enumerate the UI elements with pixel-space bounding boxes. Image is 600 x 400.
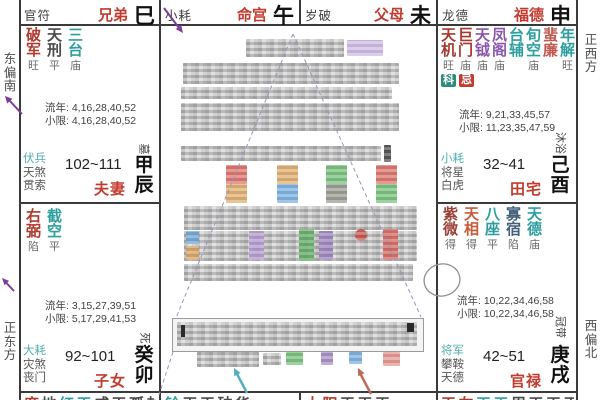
minor-god: 天煞	[23, 167, 46, 181]
ziwei-chart: 东偏南 正东方 正西方 西偏北 官符 兄弟 巳 小耗 命宫 午 岁破 父母 未 …	[0, 0, 600, 400]
xiaoxian-ages: 小限: 4,16,28,40,52	[45, 115, 136, 128]
year-god-label: 龙德	[442, 5, 469, 24]
star-name: 太阳	[305, 396, 340, 400]
pixelated-block	[263, 353, 281, 365]
compass-label-west-north: 西偏北	[584, 320, 598, 361]
year-god-label: 官符	[24, 5, 51, 24]
minor-god: 将星	[441, 167, 464, 181]
pixelated-block	[277, 184, 298, 203]
pixelated-block	[319, 231, 333, 260]
palace-mao: 右弼 陷 截空 平 流年: 3,15,27,39,51 小限: 5,17,29,…	[20, 203, 160, 392]
pixelated-block	[186, 231, 199, 244]
minor-god: 大耗	[23, 345, 46, 359]
star-name: 咸天孤封	[94, 396, 156, 400]
teal-arrow-icon	[234, 368, 247, 393]
star-column: 三台 庙	[66, 28, 85, 72]
palace-header-wu: 小耗 命宫 午	[161, 0, 299, 25]
pixelated-block	[197, 352, 259, 367]
grid-line	[299, 392, 301, 400]
minor-god: 白虎	[441, 180, 464, 194]
star-brightness: 平	[49, 241, 60, 253]
star-name: 蜚廉	[543, 28, 559, 58]
star-column: 截空 平	[45, 209, 64, 253]
palace-hai-clipped: 天左天天周天天天天	[441, 393, 574, 400]
pixelated-block	[183, 63, 399, 84]
star-name: 年解	[560, 28, 576, 58]
compass-label-west: 正西方	[584, 34, 598, 75]
star-brightness: 庙	[529, 239, 540, 251]
pixelated-block	[184, 206, 417, 230]
minor-god: 攀鞍	[441, 359, 464, 373]
star-name: 紫微	[443, 207, 459, 237]
palace-yin-clipped: 廉地红天咸天孤封	[24, 393, 156, 400]
palace-name: 田宅	[510, 178, 542, 199]
star-column: 旬空 庙	[525, 28, 542, 72]
stem-branch: 癸卯	[134, 346, 154, 386]
star-column: 天刑 平	[45, 28, 64, 72]
decade-range: 42~51	[483, 348, 525, 365]
pixelated-block	[181, 325, 185, 337]
palace-name: 夫妻	[94, 178, 126, 199]
branch-char: 未	[410, 0, 431, 25]
branch-char: 巳	[134, 0, 155, 25]
minor-god: 贯索	[23, 180, 46, 194]
palace-name: 父母	[374, 4, 404, 25]
pixelated-block	[407, 323, 414, 332]
palace-header-shen: 龙德 福德 申	[438, 0, 576, 25]
star-name: 截空	[47, 209, 63, 239]
star-column: 寡宿 陷	[504, 207, 523, 251]
star-column: 破军 旺	[24, 28, 43, 72]
stem-branch: 己酉	[550, 156, 570, 196]
star-brightness: 平	[487, 239, 498, 251]
palace-chen: 破军 旺 天刑 平 三台 庙 流年: 4,16,28,40,52 小限: 4,1…	[20, 25, 160, 203]
pixelated-block	[355, 229, 367, 241]
star-name: 天天	[476, 396, 511, 400]
star-brightness: 庙	[460, 60, 471, 72]
star-column: 天机 旺	[440, 28, 457, 72]
pixelated-block	[383, 352, 400, 366]
star-brightness: 平	[49, 60, 60, 72]
pixelated-block	[184, 264, 413, 281]
pixelated-block	[226, 184, 247, 203]
palace-header-si: 官符 兄弟 巳	[20, 0, 160, 25]
pixelated-block	[249, 231, 264, 260]
star-brightness: 旺	[28, 60, 39, 72]
star-column: 凤阁 庙	[491, 28, 508, 72]
liunian-ages: 流年: 3,15,27,39,51	[45, 300, 136, 313]
purple-arrow-icon	[2, 278, 14, 291]
palace-you: 天机 旺 巨门 庙 天钺 庙 凤阁 庙 台辅 旬空 庙	[438, 25, 576, 203]
star-column: 天相 得	[462, 207, 481, 251]
star-column: 右弼 陷	[24, 209, 43, 253]
palace-name: 兄弟	[98, 4, 128, 25]
star-name: 周天天天天	[511, 396, 574, 400]
year-god-label: 岁破	[305, 5, 332, 24]
star-column: 天德 庙	[525, 207, 544, 251]
decade-range: 32~41	[483, 156, 525, 173]
pixelated-block	[326, 165, 347, 184]
star-name: 天刑	[47, 28, 63, 58]
star-name: 天钺	[475, 28, 491, 58]
star-column: 蜚廉	[542, 28, 559, 72]
minor-god: 灾煞	[23, 359, 46, 373]
grid-line	[576, 0, 578, 400]
palace-chou-clipped: 铃天天破华	[165, 393, 295, 400]
pixelated-block	[326, 184, 347, 203]
changsheng-stage: 沐浴	[553, 132, 569, 154]
star-brightness: 旺	[562, 60, 573, 72]
star-name: 寡宿	[506, 207, 522, 237]
liunian-ages: 流年: 9,21,33,45,57	[459, 109, 555, 122]
palace-name: 子女	[94, 370, 126, 391]
star-brightness: 得	[466, 239, 477, 251]
palace-name: 命宫	[237, 4, 267, 25]
star-name: 廉	[24, 396, 42, 400]
year-god-label: 小耗	[165, 5, 192, 24]
star-name: 旬空	[526, 28, 542, 58]
star-name: 右弼	[26, 209, 42, 239]
pixelated-block	[181, 103, 399, 131]
compass-label-east: 正东方	[3, 322, 17, 363]
star-column: 八座 平	[483, 207, 502, 251]
star-name: 铃	[165, 396, 183, 400]
star-brightness: 庙	[494, 60, 505, 72]
palace-zi-clipped: 太阳天天天	[305, 393, 433, 400]
branch-char: 午	[273, 0, 294, 25]
star-name: 天相	[464, 207, 480, 237]
star-name: 台辅	[509, 28, 525, 58]
stem-branch: 甲辰	[134, 156, 154, 196]
pixelated-block	[321, 352, 333, 365]
pixelated-block	[246, 39, 344, 57]
decade-range: 92~101	[65, 348, 115, 365]
pixelated-block	[376, 184, 397, 203]
minor-god: 小耗	[441, 153, 464, 167]
star-name: 天机	[441, 28, 457, 58]
pixelated-block	[177, 322, 417, 346]
compass-label-east-south: 东偏南	[3, 53, 17, 94]
sihua-badge-ji: 忌	[459, 74, 474, 87]
xiaoxian-ages: 小限: 10,22,34,46,58	[457, 308, 554, 321]
star-brightness: 得	[445, 239, 456, 251]
pixelated-block	[349, 352, 362, 364]
star-column: 年解 旺	[559, 28, 576, 72]
star-name: 天天破华	[183, 396, 253, 400]
star-name: 凤阁	[492, 28, 508, 58]
star-name: 三台	[68, 28, 84, 58]
star-brightness: 庙	[70, 60, 81, 72]
star-column: 台辅	[508, 28, 525, 72]
pixelated-block	[181, 87, 392, 99]
changsheng-stage: 死	[138, 333, 154, 344]
liunian-ages: 流年: 4,16,28,40,52	[45, 102, 136, 115]
pixelated-block	[186, 246, 199, 260]
branch-char: 申	[550, 0, 571, 25]
pixelated-block	[286, 352, 303, 365]
pixelated-block	[277, 165, 298, 184]
star-name: 破军	[26, 28, 42, 58]
star-brightness: 陷	[28, 241, 39, 253]
pixelated-block	[384, 145, 391, 162]
xiaoxian-ages: 小限: 5,17,29,41,53	[45, 313, 136, 326]
pixelated-block	[347, 40, 383, 56]
star-brightness: 庙	[477, 60, 488, 72]
pixelated-block	[299, 229, 314, 261]
star-name: 红天	[59, 396, 94, 400]
star-brightness: 庙	[528, 60, 539, 72]
star-column: 天钺 庙	[474, 28, 491, 72]
star-brightness: 旺	[443, 60, 454, 72]
star-column: 紫微 得	[441, 207, 460, 251]
star-column: 巨门 庙	[457, 28, 474, 72]
sihua-badge-ke: 科	[441, 74, 456, 87]
star-name: 巨门	[458, 28, 474, 58]
star-name: 天天天	[340, 396, 393, 400]
pixelated-block	[376, 165, 397, 184]
minor-god: 丧门	[23, 372, 46, 386]
xiaoxian-ages: 小限: 11,23,35,47,59	[459, 122, 555, 135]
star-name: 八座	[485, 207, 501, 237]
palace-xu: 紫微 得 天相 得 八座 平 寡宿 陷 天德 庙 流年: 10,22,34,46…	[438, 203, 576, 392]
star-name: 天左	[441, 396, 476, 400]
changsheng-stage: 墓	[137, 144, 153, 155]
minor-god: 伏兵	[23, 153, 46, 167]
pixelated-block	[181, 146, 381, 161]
star-name: 地	[42, 396, 60, 400]
star-brightness: 陷	[508, 239, 519, 251]
palace-name: 官禄	[510, 370, 542, 391]
decade-range: 102~111	[65, 156, 122, 173]
minor-god: 天德	[441, 372, 464, 386]
stem-branch: 庚戌	[550, 346, 570, 386]
palace-header-wei: 岁破 父母 未	[301, 0, 436, 25]
changsheng-stage: 冠带	[553, 316, 569, 338]
liunian-ages: 流年: 10,22,34,46,58	[457, 295, 554, 308]
pixelated-block	[226, 165, 247, 184]
minor-god: 将军	[441, 345, 464, 359]
palace-name: 福德	[514, 4, 544, 25]
star-name: 天德	[527, 207, 543, 237]
pixelated-block	[383, 229, 398, 260]
